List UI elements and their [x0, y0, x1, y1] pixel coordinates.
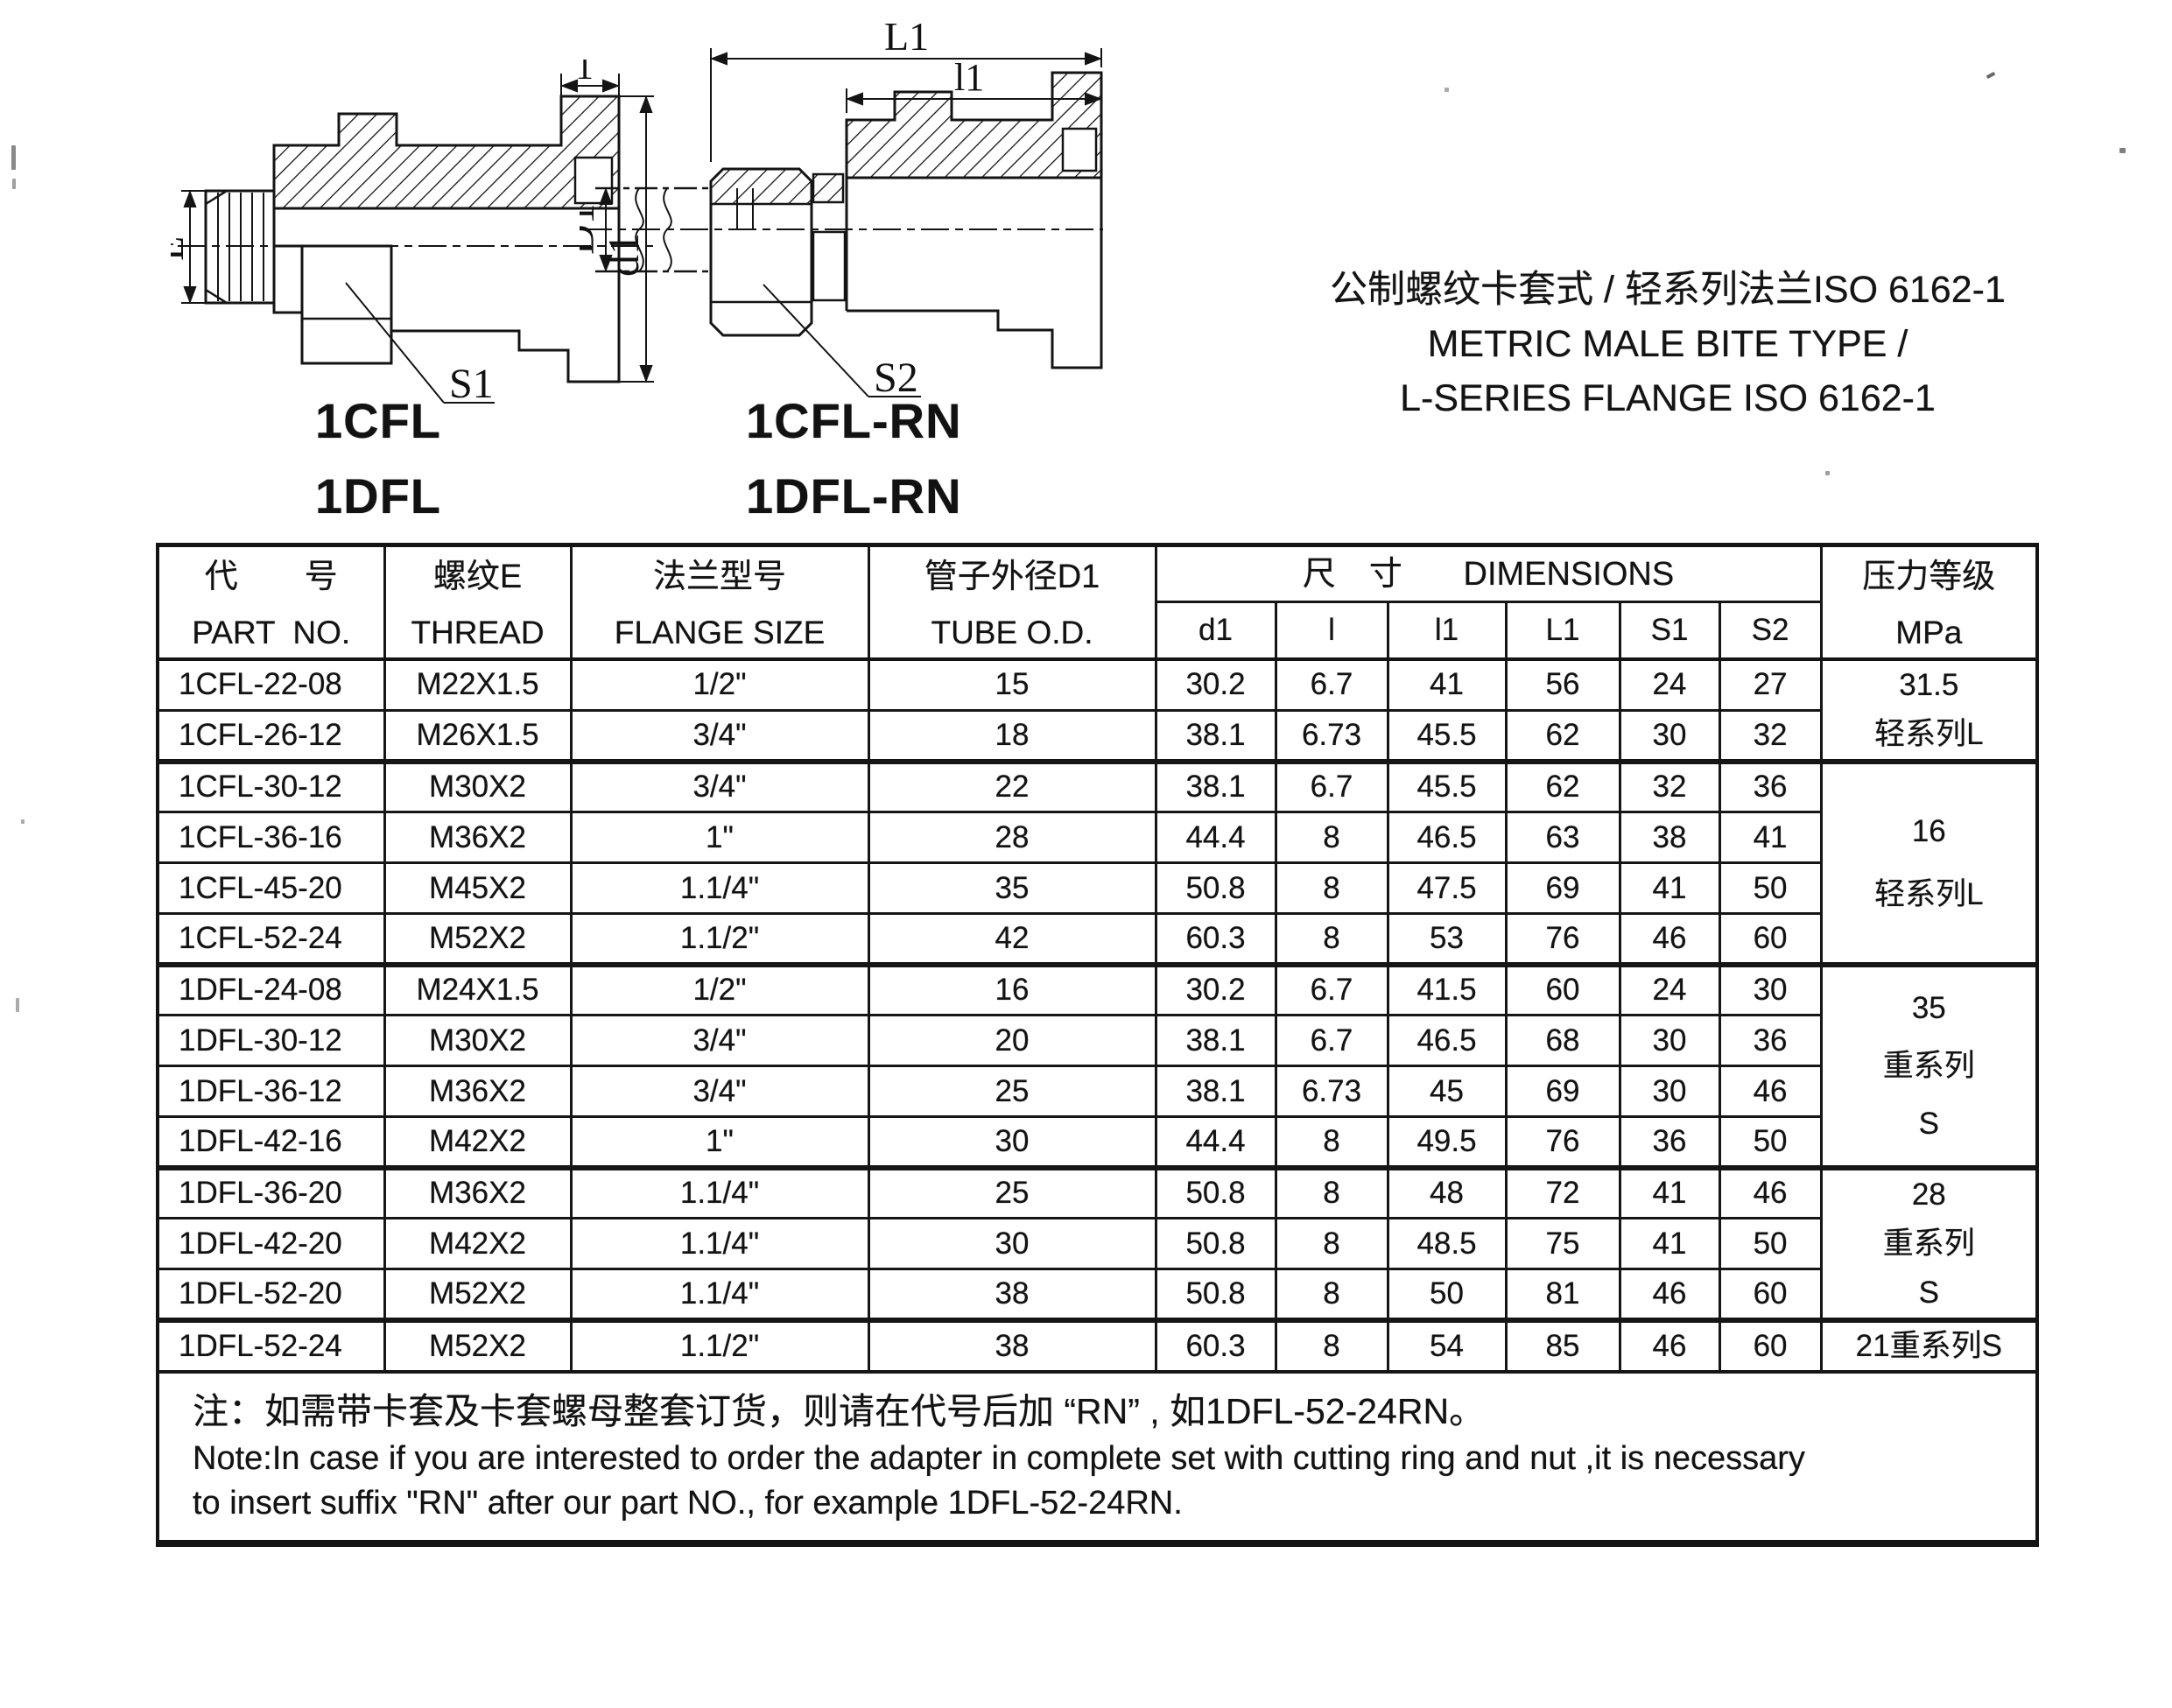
note-cell: 注：如需带卡套及卡套螺母整套订货，则请在代号后加 “RN” , 如1DFL-52… — [158, 1372, 2037, 1543]
scan-speck — [11, 145, 16, 170]
title-line-en-1: METRIC MALE BITE TYPE / — [1309, 317, 2027, 371]
cell-l: 8 — [1276, 812, 1388, 863]
cell-flange: 1.1/2" — [571, 1320, 868, 1372]
cell-d1: 50.8 — [1156, 1269, 1276, 1320]
cell-l1: 49.5 — [1388, 1117, 1506, 1168]
table-row: 1CFL-36-16M36X21"2844.4846.5633841 — [158, 812, 2037, 863]
cell-part: 1DFL-36-20 — [158, 1168, 384, 1219]
note-row: 注：如需带卡套及卡套螺母整套订货，则请在代号后加 “RN” , 如1DFL-52… — [158, 1372, 2037, 1543]
cell-l: 6.7 — [1276, 1016, 1388, 1066]
cell-tube: 22 — [868, 762, 1156, 812]
cell-l1: 62 — [1506, 762, 1620, 812]
cell-s2: 36 — [1719, 1016, 1821, 1066]
cell-flange: 1.1/4" — [571, 1269, 868, 1320]
dim-label-d1-tube: D1 — [580, 203, 603, 255]
technical-drawing-flange-fitting-with-nut: L1 l1 D1 S2 — [580, 22, 1109, 425]
cell-l1: 41.5 — [1388, 965, 1506, 1016]
cell-part: 1CFL-45-20 — [158, 863, 384, 914]
header-dim-d1: d1 — [1156, 602, 1276, 659]
cell-tube: 30 — [868, 1117, 1156, 1168]
cell-l1: 62 — [1506, 710, 1620, 762]
cell-d1: 50.8 — [1156, 1168, 1276, 1219]
cell-s1: 30 — [1620, 710, 1719, 762]
title-line-en-2: L-SERIES FLANGE ISO 6162-1 — [1309, 371, 2027, 425]
catalog-page: 1 E d1 S1 — [0, 0, 2172, 1708]
table-row: 1CFL-30-12M30X23/4"2238.16.745.562323616… — [158, 762, 2037, 812]
table-row: 1CFL-45-20M45X21.1/4"3550.8847.5694150 — [158, 863, 2037, 914]
table-row: 1DFL-52-24M52X21.1/2"3860.385485466021重系… — [158, 1320, 2037, 1372]
cell-s2: 30 — [1719, 965, 1821, 1016]
cell-tube: 38 — [868, 1269, 1156, 1320]
cell-thread: M24X1.5 — [384, 965, 571, 1016]
cell-d1: 60.3 — [1156, 914, 1276, 965]
cell-tube: 30 — [868, 1219, 1156, 1269]
cell-l1: 46.5 — [1388, 1016, 1506, 1066]
cell-l: 6.7 — [1276, 762, 1388, 812]
cell-l: 8 — [1276, 863, 1388, 914]
cell-s2: 50 — [1719, 1117, 1821, 1168]
title-block: 公制螺纹卡套式 / 轻系列法兰ISO 6162-1 METRIC MALE BI… — [1309, 263, 2027, 425]
cell-l: 8 — [1276, 914, 1388, 965]
spec-table: 代 号 PART NO. 螺纹E THREAD 法兰型号 FLANGE SIZE… — [156, 543, 2039, 1547]
cell-thread: M45X2 — [384, 863, 571, 914]
cell-l: 8 — [1276, 1219, 1388, 1269]
pressure-cell: 28重系列S — [1821, 1168, 2037, 1320]
cell-part: 1DFL-30-12 — [158, 1016, 384, 1066]
cell-flange: 3/4" — [571, 762, 868, 812]
cell-s1: 46 — [1620, 914, 1719, 965]
cell-l1: 76 — [1506, 914, 1620, 965]
scan-speck — [21, 819, 25, 824]
model-name-1dfl: 1DFL — [315, 467, 441, 524]
cell-flange: 1" — [571, 812, 868, 863]
cell-thread: M52X2 — [384, 1320, 571, 1372]
cell-l: 6.73 — [1276, 710, 1388, 762]
cell-l1: 72 — [1506, 1168, 1620, 1219]
dim-label-e: E — [171, 236, 192, 261]
table-header: 代 号 PART NO. 螺纹E THREAD 法兰型号 FLANGE SIZE… — [158, 545, 2037, 659]
cell-l1: 81 — [1506, 1269, 1620, 1320]
cell-l1: 68 — [1506, 1016, 1620, 1066]
header-pressure: 压力等级 MPa — [1821, 545, 2037, 659]
cell-d1: 38.1 — [1156, 762, 1276, 812]
dim-label-l1-sub: l1 — [954, 56, 984, 99]
cell-s2: 41 — [1719, 812, 1821, 863]
cell-part: 1CFL-26-12 — [158, 710, 384, 762]
cell-thread: M26X1.5 — [384, 710, 571, 762]
cell-l1: 46.5 — [1388, 812, 1506, 863]
cell-tube: 28 — [868, 812, 1156, 863]
cell-s1: 32 — [1620, 762, 1719, 812]
cell-thread: M22X1.5 — [384, 659, 571, 711]
cell-part: 1DFL-36-12 — [158, 1066, 384, 1117]
table-row: 1DFL-36-12M36X23/4"2538.16.7345693046 — [158, 1066, 2037, 1117]
table-row: 1DFL-52-20M52X21.1/4"3850.8850814660 — [158, 1269, 2037, 1320]
cell-d1: 38.1 — [1156, 1066, 1276, 1117]
cell-s1: 46 — [1620, 1269, 1719, 1320]
cell-s2: 60 — [1719, 1320, 1821, 1372]
cell-s1: 36 — [1620, 1117, 1719, 1168]
cell-l1: 54 — [1388, 1320, 1506, 1372]
header-dimensions: 尺 寸 DIMENSIONS — [1156, 545, 1821, 602]
header-tube-od: 管子外径D1 TUBE O.D. — [868, 545, 1156, 659]
cell-d1: 50.8 — [1156, 1219, 1276, 1269]
cell-s1: 24 — [1620, 965, 1719, 1016]
header-thread: 螺纹E THREAD — [384, 545, 571, 659]
header-part-no: 代 号 PART NO. — [158, 545, 384, 659]
cell-s1: 30 — [1620, 1066, 1719, 1117]
cell-tube: 20 — [868, 1016, 1156, 1066]
scan-speck — [2119, 148, 2126, 153]
cell-l1: 75 — [1506, 1219, 1620, 1269]
cell-thread: M42X2 — [384, 1219, 571, 1269]
cell-l: 8 — [1276, 1117, 1388, 1168]
cell-part: 1DFL-24-08 — [158, 965, 384, 1016]
cell-d1: 44.4 — [1156, 812, 1276, 863]
header-dim-L1: L1 — [1506, 602, 1620, 659]
table-row: 1DFL-42-16M42X21"3044.4849.5763650 — [158, 1117, 2037, 1168]
cell-flange: 1.1/4" — [571, 1219, 868, 1269]
cell-thread: M36X2 — [384, 812, 571, 863]
cell-tube: 35 — [868, 863, 1156, 914]
cell-thread: M52X2 — [384, 1269, 571, 1320]
scan-speck — [1986, 72, 1996, 79]
cell-l: 8 — [1276, 1269, 1388, 1320]
cell-flange: 1/2" — [571, 659, 868, 711]
cell-l1: 48.5 — [1388, 1219, 1506, 1269]
cell-d1: 30.2 — [1156, 965, 1276, 1016]
cell-l1: 48 — [1388, 1168, 1506, 1219]
cell-part: 1CFL-22-08 — [158, 659, 384, 711]
cell-l1: 47.5 — [1388, 863, 1506, 914]
header-dim-l: l — [1276, 602, 1388, 659]
scan-speck — [1444, 88, 1449, 92]
pressure-cell: 21重系列S — [1821, 1320, 2037, 1372]
cell-l: 8 — [1276, 1320, 1388, 1372]
cell-s1: 30 — [1620, 1016, 1719, 1066]
cell-s1: 24 — [1620, 659, 1719, 711]
cell-l1: 69 — [1506, 863, 1620, 914]
cell-d1: 44.4 — [1156, 1117, 1276, 1168]
cell-part: 1DFL-42-20 — [158, 1219, 384, 1269]
cell-thread: M52X2 — [384, 914, 571, 965]
cell-s1: 38 — [1620, 812, 1719, 863]
model-name-1cfl: 1CFL — [315, 392, 441, 449]
cell-tube: 25 — [868, 1066, 1156, 1117]
cell-tube: 18 — [868, 710, 1156, 762]
cell-part: 1DFL-42-16 — [158, 1117, 384, 1168]
cell-flange: 1.1/4" — [571, 1168, 868, 1219]
cell-flange: 1/2" — [571, 965, 868, 1016]
cell-l1: 85 — [1506, 1320, 1620, 1372]
table-row: 1DFL-42-20M42X21.1/4"3050.8848.5754150 — [158, 1219, 2037, 1269]
cell-s1: 41 — [1620, 1168, 1719, 1219]
cell-s1: 41 — [1620, 1219, 1719, 1269]
cell-l1: 45.5 — [1388, 710, 1506, 762]
cell-d1: 30.2 — [1156, 659, 1276, 711]
note-line-en-1: Note:In case if you are interested to or… — [193, 1437, 2009, 1481]
cell-tube: 15 — [868, 659, 1156, 711]
cell-tube: 25 — [868, 1168, 1156, 1219]
scan-speck — [12, 179, 16, 189]
title-line-zh: 公制螺纹卡套式 / 轻系列法兰ISO 6162-1 — [1309, 263, 2027, 317]
table-row: 1CFL-26-12M26X1.53/4"1838.16.7345.562303… — [158, 710, 2037, 762]
header-dim-s1: S1 — [1620, 602, 1719, 659]
cell-l1: 63 — [1506, 812, 1620, 863]
cell-part: 1DFL-52-20 — [158, 1269, 384, 1320]
cell-l: 6.73 — [1276, 1066, 1388, 1117]
note-line-en-2: to insert suffix "RN" after our part NO.… — [193, 1481, 2009, 1526]
cell-part: 1DFL-52-24 — [158, 1320, 384, 1372]
table-body: 1CFL-22-08M22X1.51/2"1530.26.74156242731… — [158, 659, 2037, 1372]
cell-s2: 60 — [1719, 914, 1821, 965]
cell-l1: 56 — [1506, 659, 1620, 711]
cell-s2: 50 — [1719, 1219, 1821, 1269]
cell-l: 6.7 — [1276, 965, 1388, 1016]
dim-label-s1: S1 — [449, 361, 494, 407]
cell-flange: 3/4" — [571, 1016, 868, 1066]
scan-speck — [16, 998, 19, 1012]
table-row: 1DFL-30-12M30X23/4"2038.16.746.5683036 — [158, 1016, 2037, 1066]
cell-part: 1CFL-36-16 — [158, 812, 384, 863]
cell-s2: 46 — [1719, 1066, 1821, 1117]
cell-d1: 50.8 — [1156, 863, 1276, 914]
dim-label-l1-overall: L1 — [884, 22, 929, 59]
cell-thread: M42X2 — [384, 1117, 571, 1168]
cell-s2: 27 — [1719, 659, 1821, 711]
cell-l1: 60 — [1506, 965, 1620, 1016]
cell-flange: 1.1/4" — [571, 863, 868, 914]
cell-thread: M36X2 — [384, 1168, 571, 1219]
cell-s2: 60 — [1719, 1269, 1821, 1320]
cell-tube: 38 — [868, 1320, 1156, 1372]
table-row: 1DFL-24-08M24X1.51/2"1630.26.741.5602430… — [158, 965, 2037, 1016]
scan-speck — [1825, 471, 1830, 475]
table-row: 1CFL-22-08M22X1.51/2"1530.26.74156242731… — [158, 659, 2037, 711]
cell-thread: M30X2 — [384, 762, 571, 812]
cell-l1: 45.5 — [1388, 762, 1506, 812]
pressure-cell: 35重系列S — [1821, 965, 2037, 1168]
cell-l1: 69 — [1506, 1066, 1620, 1117]
cell-tube: 42 — [868, 914, 1156, 965]
cell-l1: 53 — [1388, 914, 1506, 965]
pressure-cell: 16轻系列L — [1821, 762, 2037, 965]
cell-d1: 38.1 — [1156, 710, 1276, 762]
header-dim-l1: l1 — [1388, 602, 1506, 659]
cell-l: 8 — [1276, 1168, 1388, 1219]
cell-l1: 41 — [1388, 659, 1506, 711]
cell-flange: 1.1/2" — [571, 914, 868, 965]
cell-s1: 46 — [1620, 1320, 1719, 1372]
cell-part: 1CFL-30-12 — [158, 762, 384, 812]
table-row: 1CFL-52-24M52X21.1/2"4260.3853764660 — [158, 914, 2037, 965]
cell-thread: M30X2 — [384, 1016, 571, 1066]
cell-part: 1CFL-52-24 — [158, 914, 384, 965]
cell-flange: 1" — [571, 1117, 868, 1168]
model-name-1dfl-rn: 1DFL-RN — [746, 467, 962, 524]
note-line-zh: 注：如需带卡套及卡套螺母整套订货，则请在代号后加 “RN” , 如1DFL-52… — [193, 1386, 2009, 1437]
cell-flange: 3/4" — [571, 1066, 868, 1117]
cell-flange: 3/4" — [571, 710, 868, 762]
cell-l1: 50 — [1388, 1269, 1506, 1320]
cell-l: 6.7 — [1276, 659, 1388, 711]
cell-tube: 16 — [868, 965, 1156, 1016]
cell-d1: 38.1 — [1156, 1016, 1276, 1066]
cell-d1: 60.3 — [1156, 1320, 1276, 1372]
cell-s2: 50 — [1719, 863, 1821, 914]
cell-s2: 32 — [1719, 710, 1821, 762]
header-flange-size: 法兰型号 FLANGE SIZE — [571, 545, 868, 659]
header-dim-s2: S2 — [1719, 602, 1821, 659]
cell-l1: 76 — [1506, 1117, 1620, 1168]
cell-thread: M36X2 — [384, 1066, 571, 1117]
cell-l1: 45 — [1388, 1066, 1506, 1117]
table-row: 1DFL-36-20M36X21.1/4"2550.884872414628重系… — [158, 1168, 2037, 1219]
pressure-cell: 31.5轻系列L — [1821, 659, 2037, 762]
model-name-1cfl-rn: 1CFL-RN — [746, 392, 962, 449]
cell-s1: 41 — [1620, 863, 1719, 914]
cell-s2: 46 — [1719, 1168, 1821, 1219]
cell-s2: 36 — [1719, 762, 1821, 812]
